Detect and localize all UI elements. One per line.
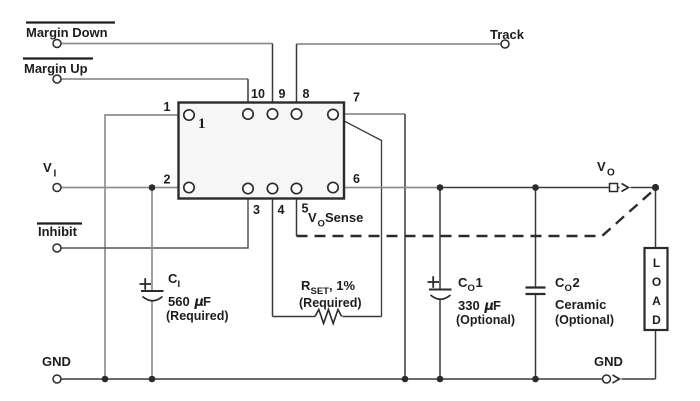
margin-up-terminal <box>53 75 61 83</box>
vosense-label-sub: O <box>318 219 325 230</box>
inhibit-terminal <box>53 244 61 252</box>
pin-2-circle <box>184 182 194 192</box>
cout2-ref-sub: O <box>565 283 572 294</box>
cin-note: (Required) <box>166 309 229 323</box>
capacitor-curved-plate <box>431 295 451 299</box>
pin-9-label: 9 <box>279 87 286 101</box>
resistor-zigzag <box>315 310 342 324</box>
gnd-right-label: GND <box>594 354 623 369</box>
vin-label: V <box>43 160 52 175</box>
junction-dot <box>149 184 156 191</box>
pin-3-circle <box>243 183 253 193</box>
cout1-value: 330 <box>458 298 480 313</box>
power-module: 1 1 2 10 9 8 7 6 3 4 5 <box>164 87 361 217</box>
pin-3-label: 3 <box>253 203 260 217</box>
pin-8-label: 8 <box>303 87 310 101</box>
pin-8-circle <box>291 109 301 119</box>
cout2-ref: C <box>555 275 565 290</box>
load-letter: O <box>652 275 661 289</box>
vin-label-sub: I <box>54 169 57 180</box>
junction-dot <box>652 184 659 191</box>
gnd-left-label: GND <box>42 354 71 369</box>
cin-ref: C <box>168 271 178 286</box>
gnd-right-terminal-circle <box>603 375 611 383</box>
pin-6-circle <box>328 182 338 192</box>
input-capacitor-labels: C I 560 μ F (Required) <box>166 271 229 323</box>
application-schematic: 1 1 2 10 9 8 7 6 3 4 5 C I 560 μ F (Requ… <box>0 0 700 401</box>
track-label: Track <box>490 27 525 42</box>
pin-10-label: 10 <box>251 87 265 101</box>
cout2-value: Ceramic <box>555 297 606 312</box>
margin-down-terminal <box>53 40 61 48</box>
cout1-ref: C <box>458 275 468 290</box>
margin-up-label: Margin Up <box>24 61 88 76</box>
vout-terminal-square <box>610 184 618 192</box>
wire-pin1-gnd <box>105 115 185 379</box>
cin-value-unit: F <box>203 294 211 309</box>
output-capacitor-2 <box>526 288 546 295</box>
output-capacitor-2-labels: C O 2 Ceramic (Optional) <box>555 275 614 327</box>
load-letter: L <box>653 256 660 270</box>
junction-dot <box>532 184 539 191</box>
pin-1-circle <box>184 110 194 120</box>
rset-labels: R SET , 1% (Required) <box>299 278 362 310</box>
capacitor-curved-plate <box>143 297 163 301</box>
pin-7-circle <box>328 109 338 119</box>
cout2-ref-index: 2 <box>573 275 580 290</box>
rset-resistor <box>315 310 342 324</box>
pin-1-inside-marker: 1 <box>198 116 206 132</box>
margin-down-label: Margin Down <box>26 25 108 40</box>
inhibit-label: Inhibit <box>38 224 78 239</box>
cout1-ref-index: 1 <box>476 275 483 290</box>
vosense-label-rest: Sense <box>325 210 363 225</box>
pin-4-circle <box>267 183 277 193</box>
pin-7-label: 7 <box>353 91 360 105</box>
junction-dot <box>402 376 409 383</box>
schematic-page: 1 1 2 10 9 8 7 6 3 4 5 C I 560 μ F (Requ… <box>0 0 700 401</box>
load-letter: A <box>652 294 661 308</box>
junction-dot <box>532 376 539 383</box>
cin-value: 560 <box>168 294 190 309</box>
vout-label-sub: O <box>607 168 615 179</box>
gnd-left-terminal <box>53 375 61 383</box>
pin-2-label: 2 <box>164 173 171 187</box>
gnd-right-terminal <box>603 375 622 385</box>
load-letter: D <box>652 313 661 327</box>
cin-ref-sub: I <box>178 279 181 290</box>
rset-note: (Required) <box>299 296 362 310</box>
pin-6-label: 6 <box>353 172 360 186</box>
pin-5-circle <box>291 183 301 193</box>
cout1-ref-sub: O <box>468 283 475 294</box>
junction-dot <box>149 376 156 383</box>
rset-ref: R <box>301 278 311 293</box>
vin-terminal <box>53 184 61 192</box>
load-box: L O A D <box>645 248 668 330</box>
pin-4-label: 4 <box>278 203 285 217</box>
pin-1-label: 1 <box>164 100 171 114</box>
vosense-label: V <box>308 210 317 225</box>
vout-terminal <box>610 183 631 193</box>
cout1-note: (Optional) <box>456 313 515 327</box>
junction-dot <box>102 376 109 383</box>
pin-10-circle <box>243 109 253 119</box>
cout2-note: (Optional) <box>555 313 614 327</box>
junction-dot <box>437 184 444 191</box>
output-capacitor-1-labels: C O 1 330 μ F (Optional) <box>456 275 515 327</box>
cout1-value-unit: F <box>493 298 501 313</box>
rset-ref-suffix: , 1% <box>329 278 355 293</box>
junction-dot <box>437 376 444 383</box>
vout-label: V <box>597 159 606 174</box>
pin-9-circle <box>267 109 277 119</box>
